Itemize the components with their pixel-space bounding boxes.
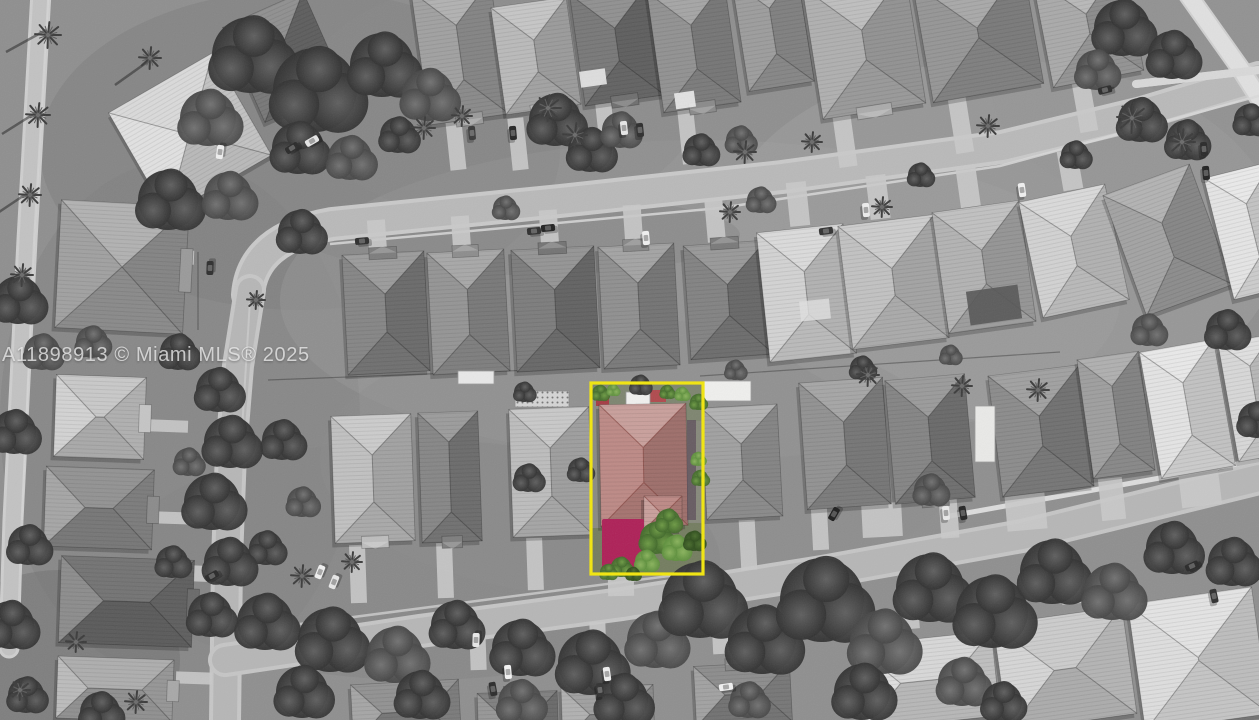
aerial-photo — [0, 0, 1259, 720]
aerial-photo-container: A11898913 © Miami MLS® 2025 — [0, 0, 1259, 720]
film-grain-overlay — [0, 0, 1259, 720]
